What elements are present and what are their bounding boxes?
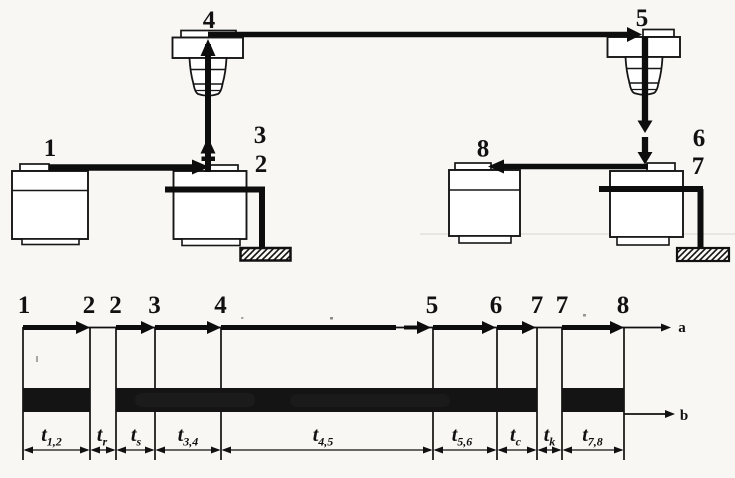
svg-text:8: 8 <box>617 292 630 319</box>
svg-text:3: 3 <box>148 292 161 319</box>
svg-text:8: 8 <box>477 136 490 163</box>
svg-text:a: a <box>678 320 686 336</box>
svg-text:2: 2 <box>255 151 268 178</box>
svg-text:2: 2 <box>109 292 122 319</box>
svg-text:tk: tk <box>544 424 556 449</box>
svg-text:5: 5 <box>426 292 439 319</box>
svg-text:ts: ts <box>131 424 142 449</box>
svg-text:t7,8: t7,8 <box>582 424 603 449</box>
svg-text:2: 2 <box>83 292 96 319</box>
svg-text:5: 5 <box>636 5 649 32</box>
svg-text:t4,5: t4,5 <box>313 424 334 449</box>
svg-text:6: 6 <box>693 125 706 152</box>
svg-text:7: 7 <box>531 292 544 319</box>
svg-text:7: 7 <box>556 292 569 319</box>
svg-text:t5,6: t5,6 <box>452 424 473 449</box>
svg-text:tc: tc <box>510 424 522 449</box>
svg-text:t3,4: t3,4 <box>178 424 199 449</box>
svg-text:4: 4 <box>214 292 227 319</box>
svg-text:t1,2: t1,2 <box>41 424 62 449</box>
svg-text:3: 3 <box>254 122 267 149</box>
svg-text:6: 6 <box>490 292 503 319</box>
svg-text:tr: tr <box>97 424 108 449</box>
svg-text:1: 1 <box>18 292 31 319</box>
svg-text:b: b <box>680 408 688 424</box>
svg-text:4: 4 <box>203 7 216 34</box>
svg-text:1: 1 <box>44 135 57 162</box>
svg-text:7: 7 <box>692 153 705 180</box>
